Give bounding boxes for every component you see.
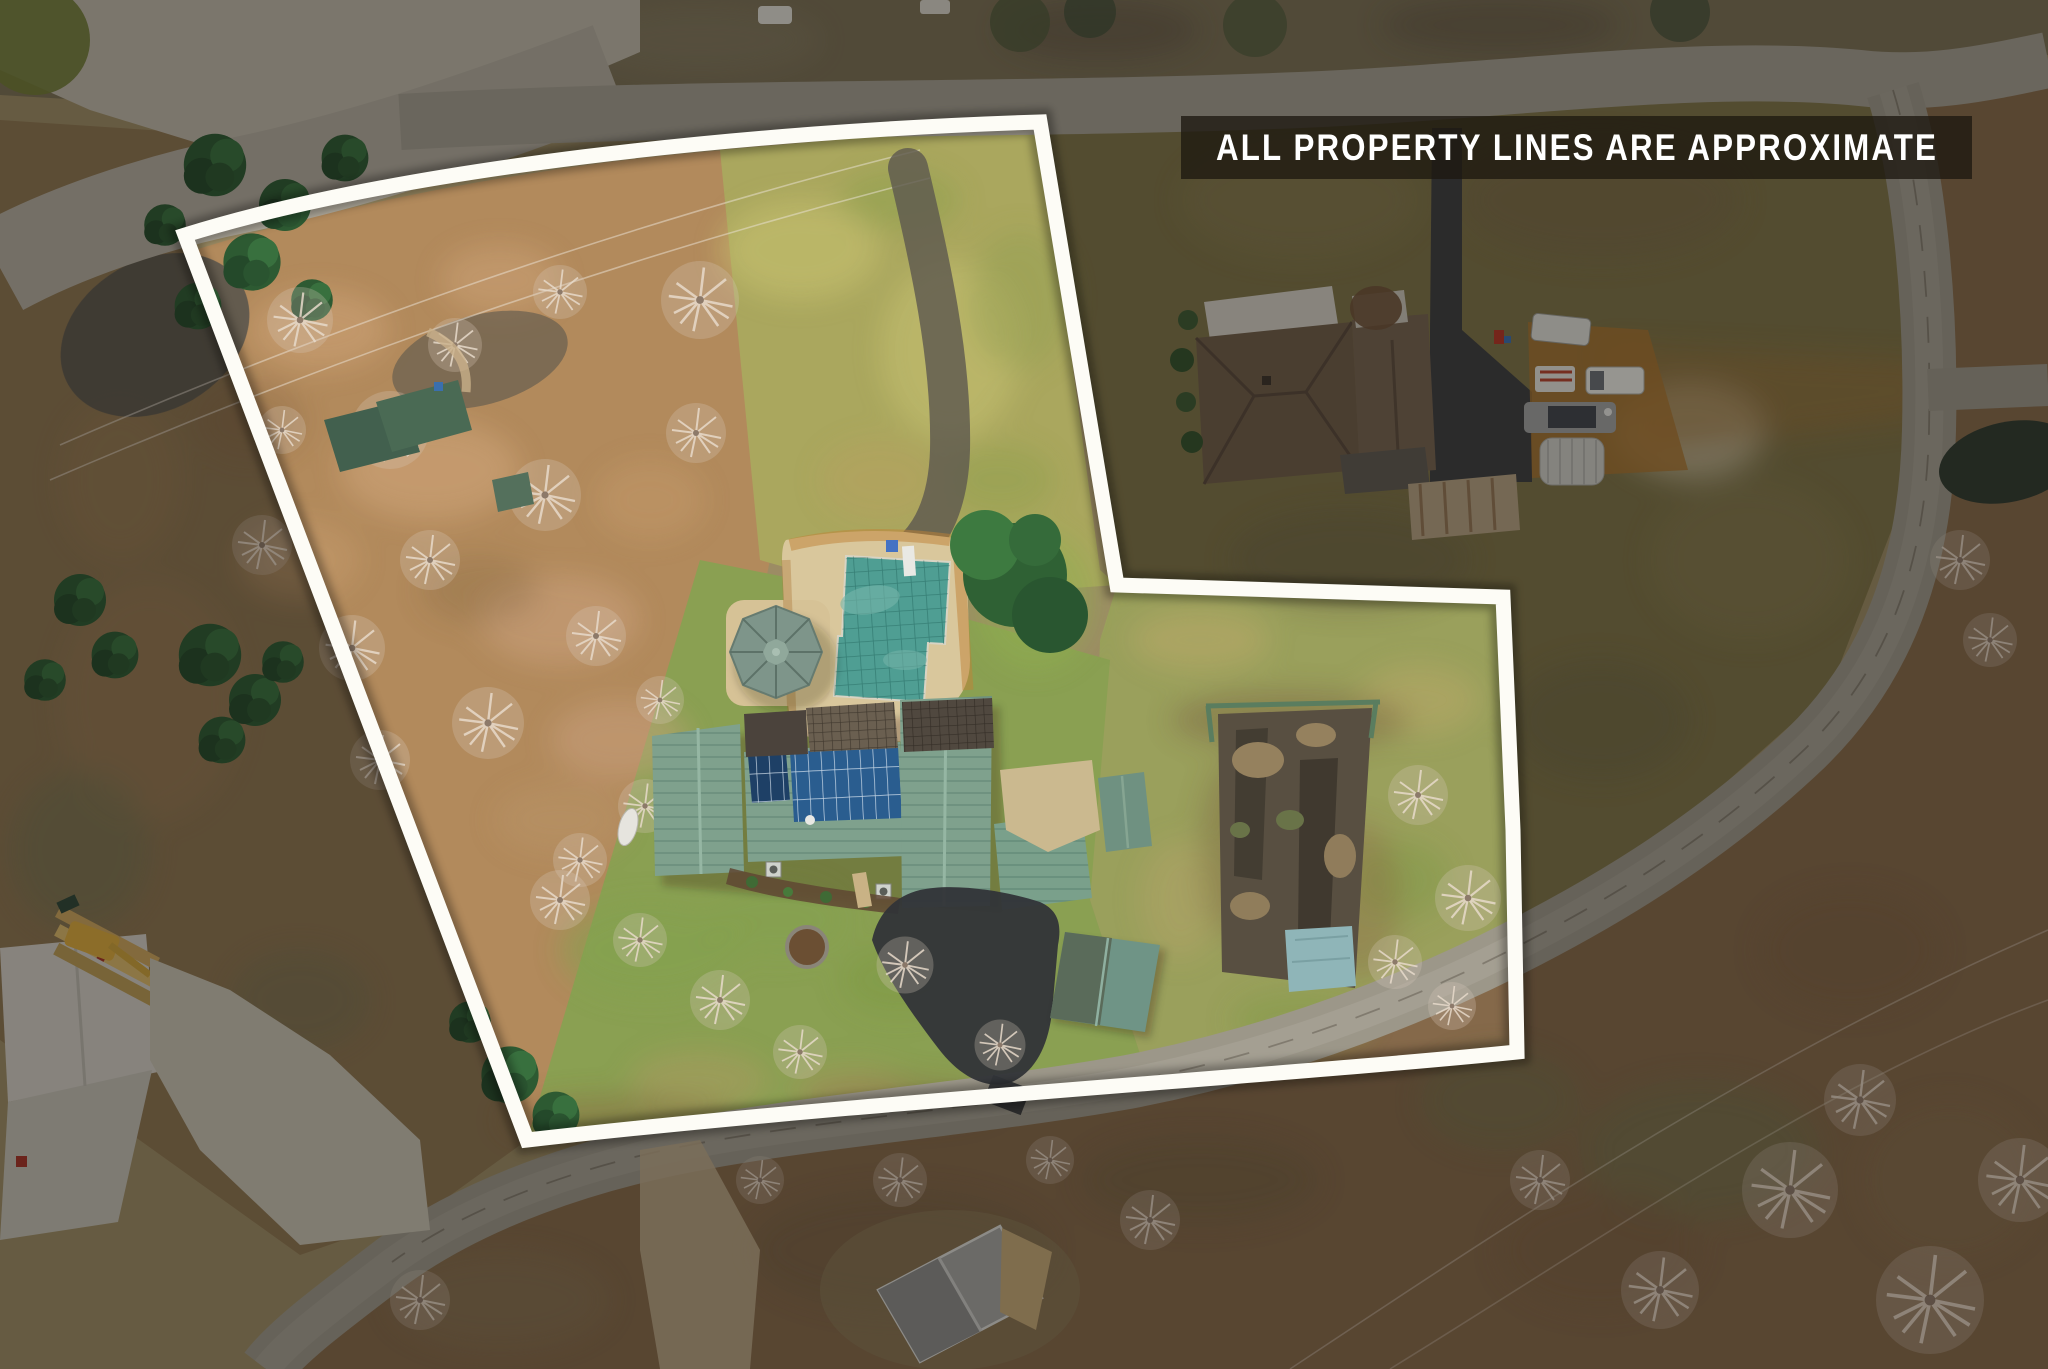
roof-vent <box>805 815 815 825</box>
banner-text: ALL PROPERTY LINES ARE APPROXIMATE <box>1216 127 1938 168</box>
aerial-photo-canvas: ALL PROPERTY LINES ARE APPROXIMATE <box>0 0 2048 1369</box>
detached-garage <box>1050 932 1166 1038</box>
disclaimer-banner: ALL PROPERTY LINES ARE APPROXIMATE <box>1181 116 1972 179</box>
diving-board <box>902 546 916 577</box>
old-tennis-court <box>1206 702 1380 992</box>
aerial-photo: ALL PROPERTY LINES ARE APPROXIMATE <box>0 0 2048 1369</box>
well-house-shed <box>1098 772 1152 852</box>
pool-blue-pad <box>886 540 898 552</box>
fire-pit-garden-circle <box>787 927 827 967</box>
blue-object <box>434 382 443 391</box>
